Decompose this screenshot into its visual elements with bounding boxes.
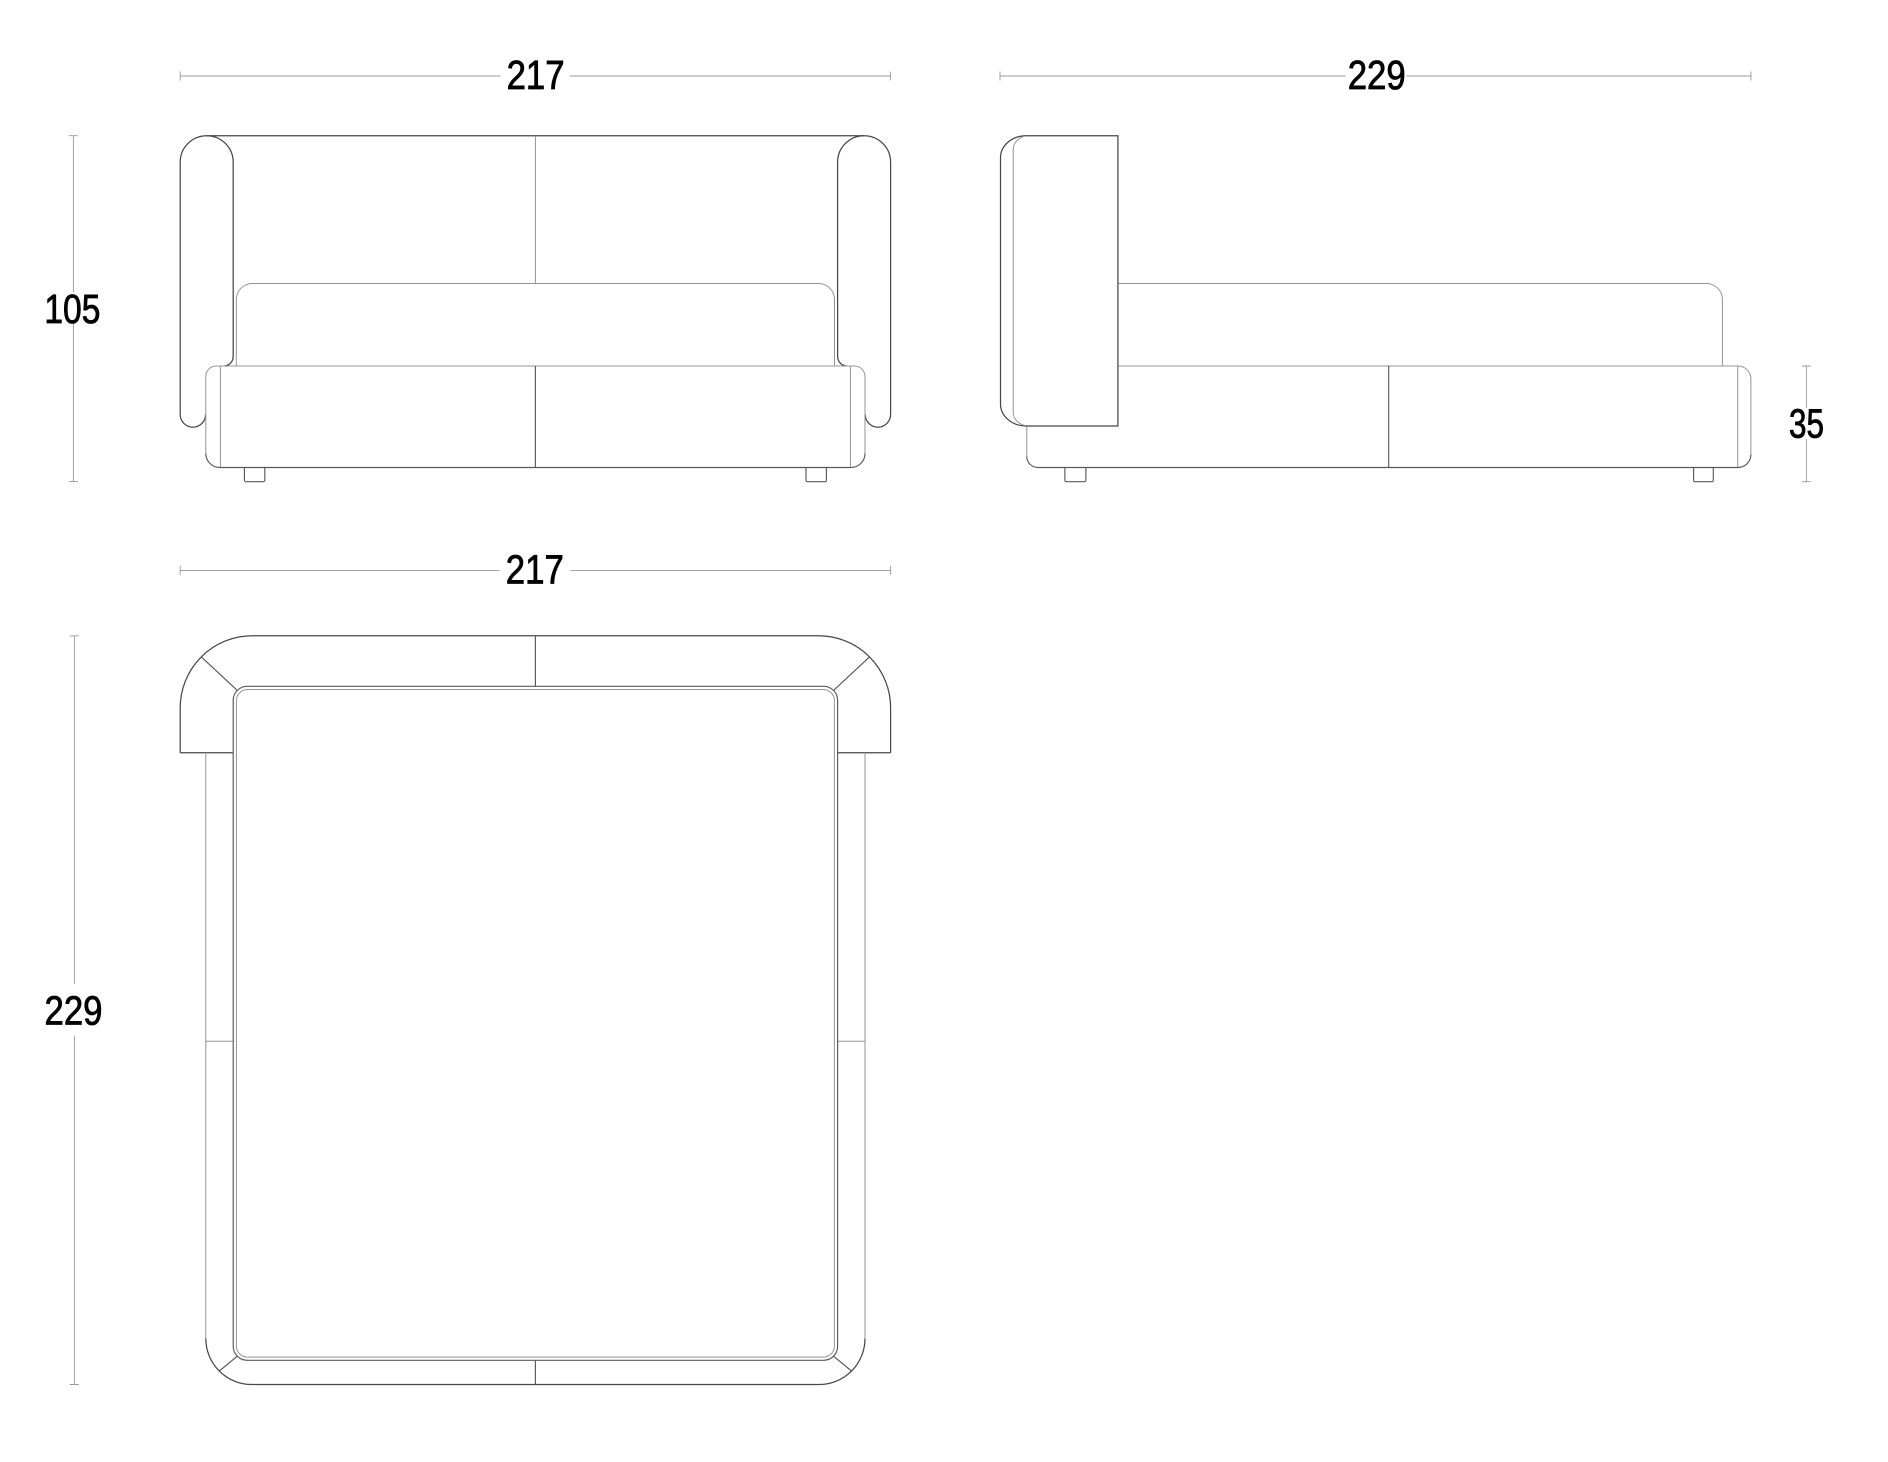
svg-text:217: 217 [506,547,564,593]
svg-text:229: 229 [45,988,103,1034]
svg-text:105: 105 [44,286,100,332]
svg-text:217: 217 [507,52,565,98]
svg-text:35: 35 [1789,400,1824,446]
svg-text:229: 229 [1348,52,1406,98]
